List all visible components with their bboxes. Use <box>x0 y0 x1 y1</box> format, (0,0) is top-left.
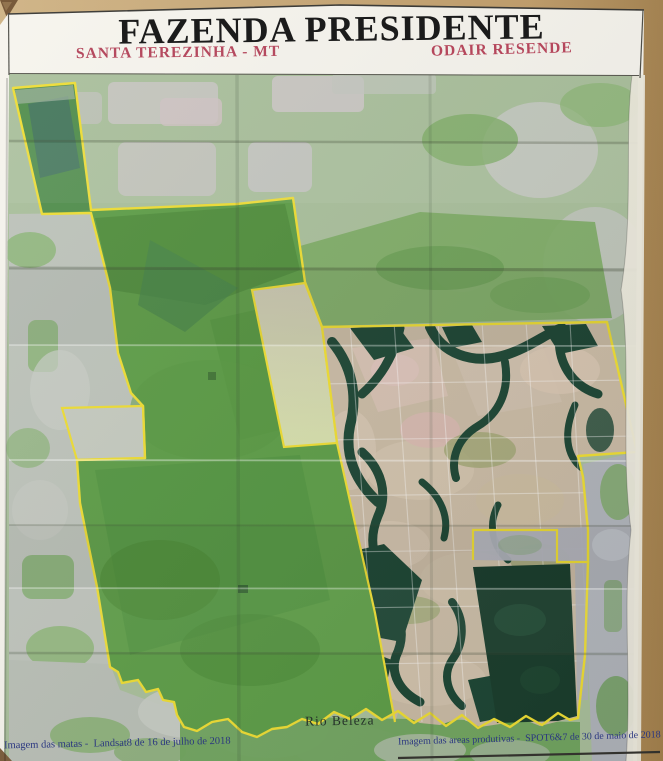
map-subtitle-location: SANTA TEREZINHA - MT <box>76 43 280 63</box>
photo-of-printed-farm-map: FAZENDA PRESIDENTE SANTA TEREZINHA - MT … <box>0 0 663 761</box>
farm-map-graphic <box>0 0 663 761</box>
map-subtitle-owner: ODAIR RESENDE <box>431 39 573 60</box>
photo-light-gradient <box>0 0 663 761</box>
river-label: Rio Beleza <box>305 712 375 729</box>
